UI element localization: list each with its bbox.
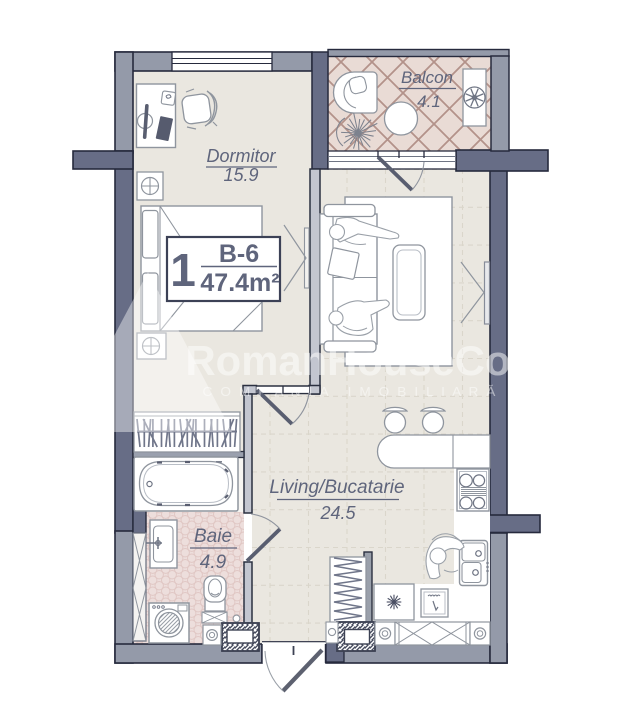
svg-text:C O M P A N I A I M O B I L: C O M P A N I A I M O B I L I A R Ă bbox=[203, 384, 498, 399]
svg-text:24.5: 24.5 bbox=[319, 503, 356, 523]
svg-text:RomanHouseCo: RomanHouseCo bbox=[186, 337, 511, 384]
svg-text:Balcon: Balcon bbox=[401, 68, 453, 87]
svg-text:Living/Bucatarie: Living/Bucatarie bbox=[269, 477, 404, 498]
svg-text:4.1: 4.1 bbox=[417, 92, 441, 111]
svg-text:15.9: 15.9 bbox=[223, 165, 258, 185]
svg-text:B-6: B-6 bbox=[219, 240, 259, 268]
svg-text:47.4m²: 47.4m² bbox=[200, 269, 279, 297]
svg-text:4.9: 4.9 bbox=[200, 552, 227, 573]
svg-text:1: 1 bbox=[170, 244, 196, 296]
svg-text:Dormitor: Dormitor bbox=[206, 146, 276, 166]
svg-text:Baie: Baie bbox=[194, 526, 232, 547]
